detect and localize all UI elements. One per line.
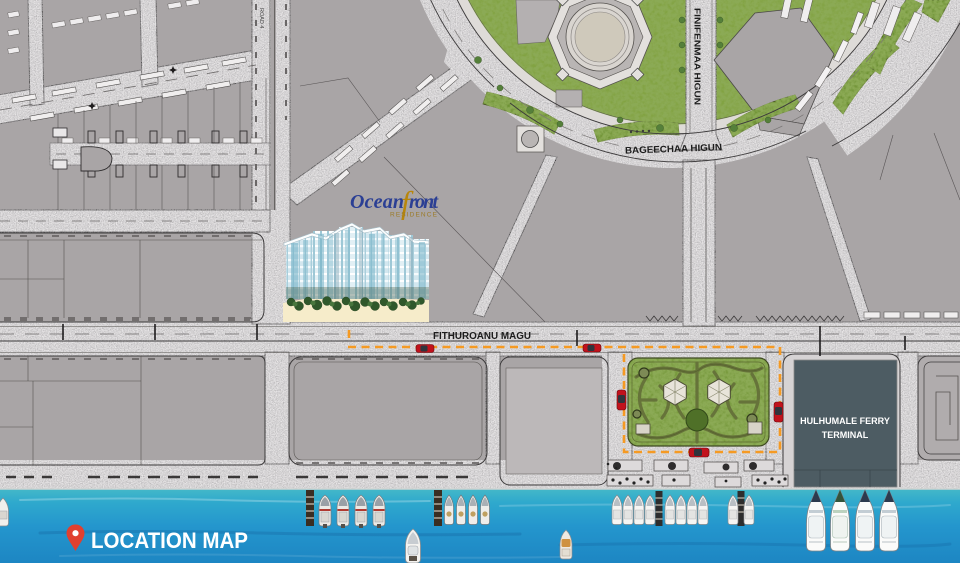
svg-text:RESIDENCE: RESIDENCE [390, 212, 438, 219]
svg-text:ront: ront [409, 191, 439, 213]
svg-text:Ocean: Ocean [350, 191, 404, 213]
svg-text:TERMINAL: TERMINAL [822, 430, 869, 440]
svg-text:LOCATION MAP: LOCATION MAP [91, 528, 248, 553]
svg-text:FITHUROANU MAGU: FITHUROANU MAGU [433, 330, 531, 342]
svg-text:HULHUMALE FERRY: HULHUMALE FERRY [800, 416, 890, 426]
svg-text:FINIFENMAA HIGUN: FINIFENMAA HIGUN [693, 8, 702, 105]
svg-text:ROAD 4: ROAD 4 [258, 8, 264, 28]
